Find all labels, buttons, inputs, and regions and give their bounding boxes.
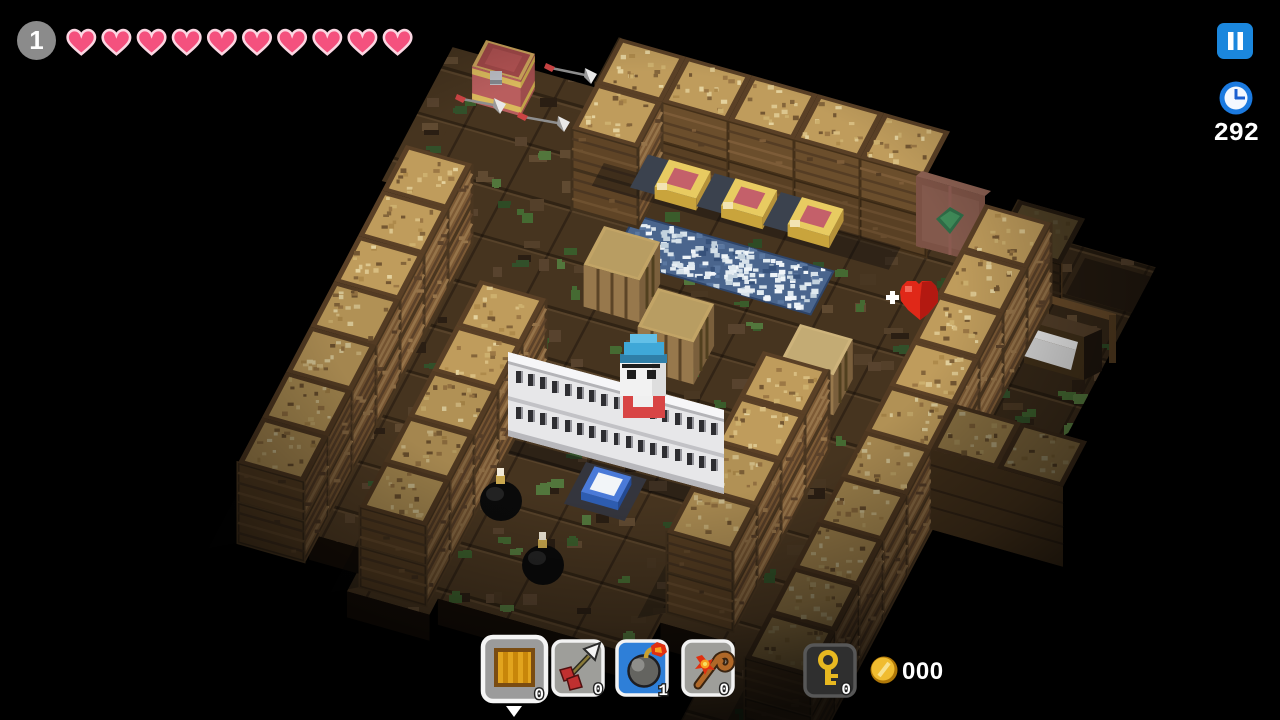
svg-text:0: 0 (719, 681, 729, 699)
svg-text:000: 000 (902, 658, 944, 685)
svg-text:0: 0 (593, 681, 603, 699)
svg-text:292: 292 (1213, 118, 1258, 148)
svg-text:1: 1 (658, 682, 668, 700)
svg-text:1: 1 (29, 25, 43, 55)
svg-text:0: 0 (841, 681, 851, 699)
svg-text:0: 0 (534, 686, 544, 704)
